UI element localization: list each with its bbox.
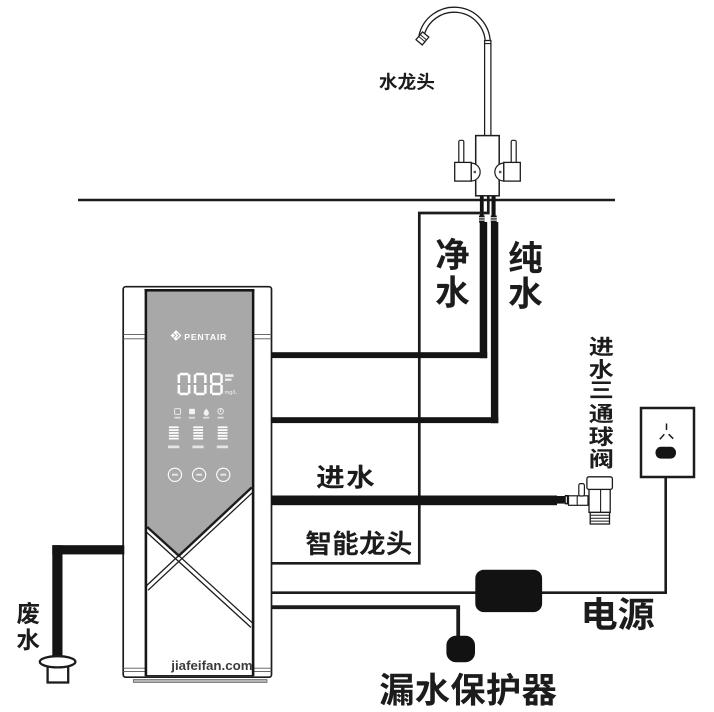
svg-text:PENTAIR: PENTAIR xyxy=(184,332,227,342)
svg-text:mg/L: mg/L xyxy=(225,390,237,396)
svg-text:jiafeifan.com: jiafeifan.com xyxy=(170,658,252,673)
